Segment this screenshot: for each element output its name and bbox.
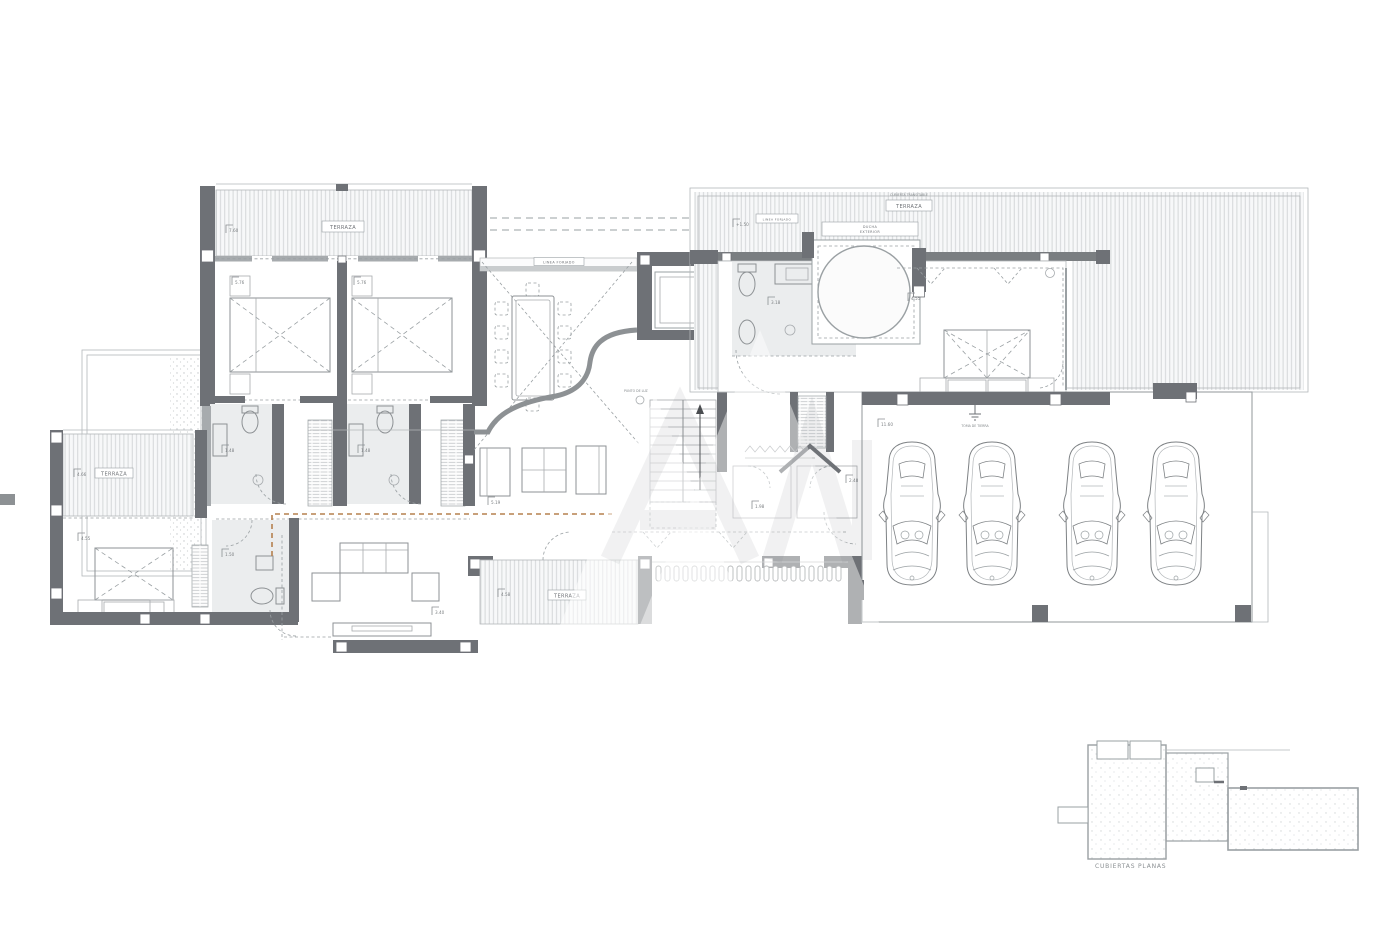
lounge-upper <box>480 446 606 496</box>
forjado-label-2: LINEA FORJADO <box>763 218 792 222</box>
wall-left <box>200 186 215 406</box>
curved-wall <box>474 330 637 432</box>
svg-text:5.19: 5.19 <box>491 500 501 505</box>
bathroom-1 <box>210 404 272 504</box>
wardrobe-2 <box>441 420 465 506</box>
svg-text:5.76: 5.76 <box>235 280 245 285</box>
svg-text:4.58: 4.58 <box>501 592 511 597</box>
wall-right <box>472 186 487 406</box>
svg-text:3.40: 3.40 <box>435 610 445 615</box>
car-1 <box>879 442 945 585</box>
block-bedrooms-top-left: TERRAZA <box>200 184 487 519</box>
wardrobe-3 <box>192 545 208 607</box>
lounge-tv <box>270 535 478 653</box>
shower-label-1: DUCHA <box>863 225 878 229</box>
svg-text:7.60: 7.60 <box>229 228 239 233</box>
car-4 <box>1143 442 1209 585</box>
floor-plan-drawing: TERRAZA <box>0 0 1400 933</box>
bathroom-3 <box>212 520 290 612</box>
svg-text:3.18: 3.18 <box>771 300 781 305</box>
terrace-top-left-label: TERRAZA <box>329 225 356 231</box>
shower-label-2: EXTERIOR <box>860 230 880 234</box>
dining-table <box>512 296 554 400</box>
garage: TOMA DE TIERRA <box>852 383 1268 622</box>
terrace-lower-left-label: TERRAZA <box>100 472 127 478</box>
svg-text:4.55: 4.55 <box>81 536 91 541</box>
wardrobe-1 <box>308 420 332 506</box>
section-line <box>272 514 612 556</box>
svg-text:4.55: 4.55 <box>911 296 921 301</box>
boundary-wall-stub <box>0 494 15 505</box>
key-plan-caption: CUBIERTAS PLANAS <box>1095 863 1166 870</box>
floor-plan-canvas: TERRAZA <box>0 0 1400 933</box>
light-point-label: PUNTO DE LUZ <box>624 389 648 393</box>
key-plan-roof: CUBIERTAS PLANAS <box>1058 741 1358 870</box>
bed-bedroom-3 <box>78 548 174 615</box>
svg-text:1.48: 1.48 <box>361 448 371 453</box>
bed-bedroom-2 <box>352 276 452 394</box>
car-2 <box>959 442 1025 585</box>
bed-bedroom-1 <box>230 276 330 394</box>
svg-text:11.60: 11.60 <box>881 422 893 427</box>
svg-text:+1.50: +1.50 <box>736 222 749 227</box>
svg-text:1.50: 1.50 <box>225 552 235 557</box>
terrace-note: CUBIERTA TRANSITABLE <box>890 193 928 197</box>
tv-sideboard <box>333 623 431 636</box>
terrace-top-right-label: TERRAZA <box>895 204 922 210</box>
svg-text:5.76: 5.76 <box>357 280 367 285</box>
svg-text:4.66: 4.66 <box>77 472 87 477</box>
bathroom-2 <box>347 404 409 504</box>
ground-label: TOMA DE TIERRA <box>960 424 989 428</box>
car-3 <box>1059 442 1125 585</box>
svg-text:1.48: 1.48 <box>225 448 235 453</box>
dining-chairs <box>495 283 571 411</box>
svg-text:1.98: 1.98 <box>755 504 765 509</box>
svg-text:2.48: 2.48 <box>849 478 859 483</box>
forjado-label: LINEA FORJADO <box>543 261 575 265</box>
outdoor-shower-tub: DUCHA EXTERIOR <box>802 222 926 344</box>
